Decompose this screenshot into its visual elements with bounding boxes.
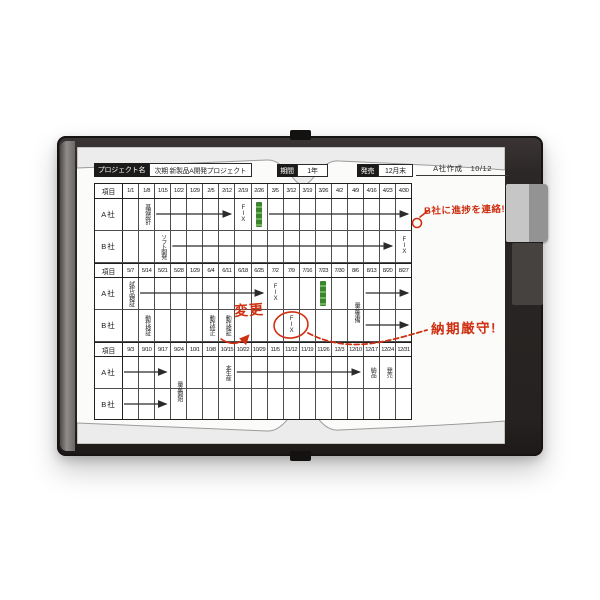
grid-cell (139, 199, 155, 230)
date-cell: 4/16 (364, 184, 380, 198)
grid-cell (332, 231, 348, 262)
grid-cell (380, 389, 396, 419)
grid-cell (171, 199, 187, 230)
grid-cell (203, 199, 219, 230)
grid-cell (300, 278, 316, 309)
grid-cell (364, 310, 380, 341)
grid-cell (123, 389, 139, 419)
grid-cell (139, 389, 155, 419)
item-header-cell: 項目 (95, 264, 123, 277)
date-cell: 1/29 (187, 184, 203, 198)
date-cell: 4/30 (396, 184, 411, 198)
binder-spine (60, 141, 75, 451)
grid-cell (252, 357, 268, 388)
grid-cell (348, 389, 364, 419)
grid-cell (123, 199, 139, 230)
date-cell: 12/3 (332, 343, 348, 356)
deadline-note: 納期厳守! (431, 316, 497, 337)
grid-cell (348, 310, 364, 341)
date-cell: 11/26 (316, 343, 332, 356)
created-by-field: A社作成 10/12 (416, 162, 509, 176)
grid-cell (268, 199, 284, 230)
grid-cell (316, 310, 332, 341)
grid-cell (332, 357, 348, 388)
date-cell: 8/20 (380, 264, 396, 277)
release-value: 12月末 (378, 164, 413, 177)
binder-clip-bottom (290, 451, 311, 461)
index-tab-lower (512, 243, 543, 305)
grid-cell (155, 310, 171, 341)
grid-cell (316, 389, 332, 419)
grid-cell (219, 389, 235, 419)
date-cell: 8/6 (348, 264, 364, 277)
date-cell: 10/1 (187, 343, 203, 356)
date-cell: 12/17 (364, 343, 380, 356)
grid-cell (155, 199, 171, 230)
grid-cell (123, 310, 139, 341)
grid-cell (171, 278, 187, 309)
grid-cell (316, 199, 332, 230)
grid-cell (219, 231, 235, 262)
grid-cell (171, 357, 187, 388)
date-cell: 2/19 (235, 184, 251, 198)
grid-cell (332, 278, 348, 309)
grid-cell (380, 278, 396, 309)
grid-cell (123, 278, 139, 309)
date-cell: 2/26 (252, 184, 268, 198)
grid-cell (380, 231, 396, 262)
date-cell: 3/12 (284, 184, 300, 198)
date-cell: 11/5 (268, 343, 284, 356)
date-cell: 3/19 (300, 184, 316, 198)
date-cell: 9/24 (171, 343, 187, 356)
grid-cell (235, 231, 251, 262)
index-tab (506, 184, 548, 242)
grid-cell (235, 357, 251, 388)
grid-cell (300, 199, 316, 230)
grid-cell (316, 278, 332, 309)
grid-cell (268, 357, 284, 388)
grid-cell (284, 278, 300, 309)
grid-cell (396, 310, 411, 341)
grid-cell (155, 231, 171, 262)
grid-cell (123, 357, 139, 388)
date-cell: 1/29 (187, 264, 203, 277)
grid-cell (268, 310, 284, 341)
item-header-cell: 項目 (95, 184, 123, 198)
date-cell: 7/30 (332, 264, 348, 277)
company-row-label: B社 (95, 389, 123, 419)
date-cell: 8/13 (364, 264, 380, 277)
grid-cell (348, 278, 364, 309)
date-cell: 10/8 (203, 343, 219, 356)
date-header-row: 項目1/11/81/151/221/292/52/122/192/263/53/… (95, 184, 411, 199)
grid-cell (139, 278, 155, 309)
grid-cell (219, 310, 235, 341)
grid-cell (396, 231, 411, 262)
period-value: 1年 (297, 164, 328, 177)
date-cell: 7/16 (300, 264, 316, 277)
date-cell: 4/9 (348, 184, 364, 198)
date-cell: 2/5 (203, 184, 219, 198)
grid-cell (300, 357, 316, 388)
date-header-row: 項目9/39/109/179/2410/110/810/1510/2210/29… (95, 342, 411, 357)
grid-cell (155, 278, 171, 309)
grid-cell (171, 389, 187, 419)
grid-cell (203, 389, 219, 419)
grid-cell (171, 310, 187, 341)
product-photo-board: プロジェクト名 次期 新製品A開発プロジェクト 期間 1年 発売 12月末 A社… (0, 0, 600, 600)
grid-cell (316, 357, 332, 388)
grid-cell (187, 199, 203, 230)
date-cell: 12/31 (396, 343, 411, 356)
grid-cell (203, 357, 219, 388)
project-name-value: 次期 新製品A開発プロジェクト (149, 163, 252, 177)
task-row: A社 (95, 357, 411, 389)
grid-cell (155, 389, 171, 419)
grid-cell (348, 357, 364, 388)
task-row: B社 (95, 389, 411, 419)
grid-cell (187, 357, 203, 388)
date-header-row: 項目5/75/145/215/281/296/46/116/186/257/27… (95, 263, 411, 278)
date-cell: 11/12 (284, 343, 300, 356)
grid-cell (139, 310, 155, 341)
date-cell: 7/9 (284, 264, 300, 277)
grid-cell (332, 199, 348, 230)
grid-cell (284, 310, 300, 341)
period-label: 期間 (277, 164, 297, 177)
date-cell: 9/3 (123, 343, 139, 356)
grid-cell (284, 199, 300, 230)
grid-cell (187, 278, 203, 309)
grid-cell (316, 231, 332, 262)
grid-cell (300, 310, 316, 341)
grid-cell (348, 199, 364, 230)
date-cell: 5/28 (171, 264, 187, 277)
date-cell: 10/29 (252, 343, 268, 356)
date-cell: 1/1 (123, 184, 139, 198)
grid-cell (284, 389, 300, 419)
date-cell: 10/15 (219, 343, 235, 356)
date-cell: 4/23 (380, 184, 396, 198)
date-cell: 6/25 (252, 264, 268, 277)
grid-cell (364, 199, 380, 230)
date-cell: 1/15 (155, 184, 171, 198)
grid-cell (252, 231, 268, 262)
date-cell: 12/24 (380, 343, 396, 356)
grid-cell (219, 199, 235, 230)
date-cell: 3/26 (316, 184, 332, 198)
date-cell: 9/17 (155, 343, 171, 356)
date-cell: 6/4 (203, 264, 219, 277)
project-name-label: プロジェクト名 (94, 163, 149, 177)
grid-cell (187, 231, 203, 262)
date-cell: 7/23 (316, 264, 332, 277)
grid-cell (252, 199, 268, 230)
date-cell: 1/8 (139, 184, 155, 198)
company-row-label: A社 (95, 357, 123, 388)
grid-cell (219, 357, 235, 388)
date-cell: 2/12 (219, 184, 235, 198)
grid-cell (123, 231, 139, 262)
company-row-label: B社 (95, 310, 123, 341)
grid-cell (332, 389, 348, 419)
grid-cell (284, 231, 300, 262)
grid-cell (203, 231, 219, 262)
date-cell: 4/2 (332, 184, 348, 198)
date-cell: 10/22 (235, 343, 251, 356)
grid-cell (268, 278, 284, 309)
date-cell: 11/19 (300, 343, 316, 356)
grid-cell (300, 231, 316, 262)
date-cell: 8/27 (396, 264, 411, 277)
grid-cell (235, 389, 251, 419)
grid-cell (203, 310, 219, 341)
grid-cell (396, 389, 411, 419)
grid-cell (235, 199, 251, 230)
grid-cell (139, 357, 155, 388)
company-row-label: B社 (95, 231, 123, 262)
grid-cell (396, 199, 411, 230)
grid-cell (364, 357, 380, 388)
item-header-cell: 項目 (95, 343, 123, 356)
grid-cell (396, 357, 411, 388)
grid-cell (364, 278, 380, 309)
date-cell: 12/10 (348, 343, 364, 356)
progress-note: B社に進捗を連絡! (424, 201, 505, 217)
task-row: A社 (95, 199, 411, 231)
grid-cell (284, 357, 300, 388)
grid-cell (364, 389, 380, 419)
grid-cell (396, 278, 411, 309)
task-row: B社 (95, 231, 411, 263)
company-row-label: A社 (95, 278, 123, 309)
grid-cell (268, 231, 284, 262)
grid-cell (203, 278, 219, 309)
release-label: 発売 (357, 164, 378, 177)
date-cell: 9/10 (139, 343, 155, 356)
binder-clip-top (290, 130, 311, 140)
grid-cell (252, 389, 268, 419)
grid-cell (139, 231, 155, 262)
grid-cell (380, 199, 396, 230)
grid-cell (348, 231, 364, 262)
grid-cell (380, 357, 396, 388)
grid-cell (332, 310, 348, 341)
date-cell: 3/5 (268, 184, 284, 198)
date-cell: 5/21 (155, 264, 171, 277)
company-row-label: A社 (95, 199, 123, 230)
date-cell: 5/7 (123, 264, 139, 277)
grid-cell (155, 357, 171, 388)
grid-cell (300, 389, 316, 419)
date-cell: 6/11 (219, 264, 235, 277)
grid-cell (187, 389, 203, 419)
date-cell: 7/2 (268, 264, 284, 277)
change-note: 変更 (233, 299, 264, 321)
grid-cell (364, 231, 380, 262)
grid-cell (268, 389, 284, 419)
date-cell: 1/22 (171, 184, 187, 198)
grid-cell (380, 310, 396, 341)
date-cell: 6/18 (235, 264, 251, 277)
grid-cell (171, 231, 187, 262)
grid-cell (187, 310, 203, 341)
date-cell: 5/14 (139, 264, 155, 277)
